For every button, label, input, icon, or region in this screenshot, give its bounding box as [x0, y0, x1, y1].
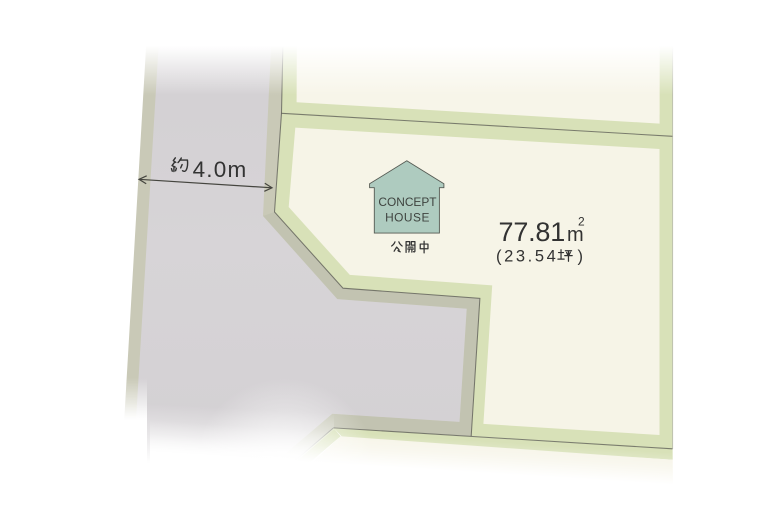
svg-text:77.81: 77.81 — [499, 217, 566, 247]
svg-text:): ) — [578, 248, 584, 266]
svg-text:2: 2 — [578, 215, 585, 229]
svg-text:HOUSE: HOUSE — [385, 211, 430, 225]
svg-text:(23.54: (23.54 — [496, 248, 558, 266]
svg-text:CONCEPT: CONCEPT — [378, 195, 436, 209]
svg-text:4.0m: 4.0m — [193, 157, 248, 182]
